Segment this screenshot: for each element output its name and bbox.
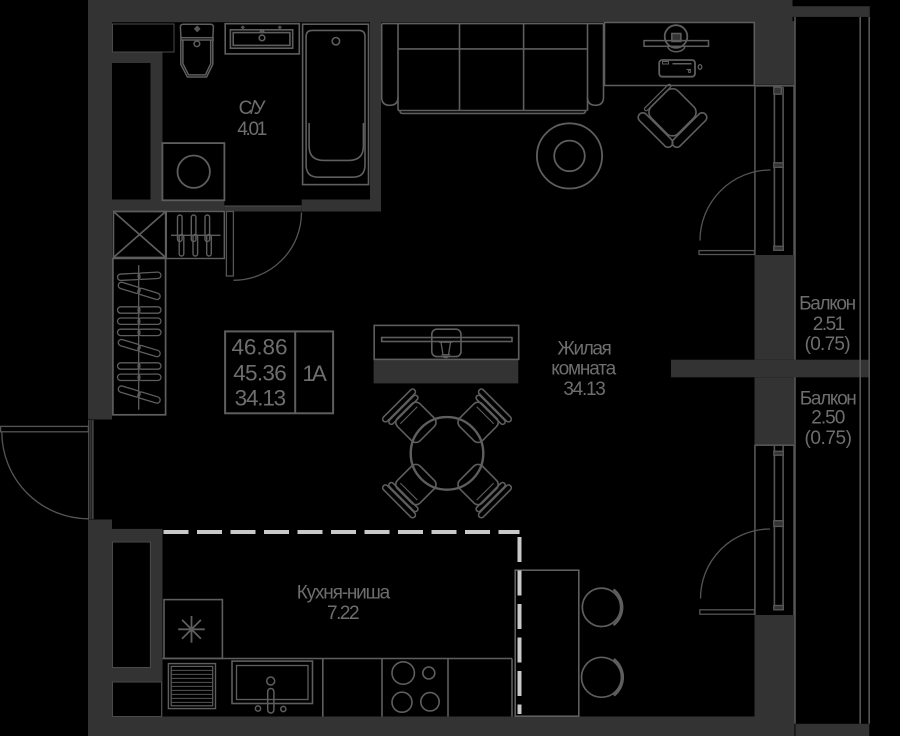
svg-text:(0.75): (0.75) [805,334,851,355]
svg-text:комната: комната [551,358,616,379]
svg-text:2.50: 2.50 [811,408,845,429]
svg-text:34.13: 34.13 [563,379,606,400]
svg-text:45.36: 45.36 [233,360,287,385]
svg-text:Балкон: Балкон [799,293,856,314]
svg-text:С/У: С/У [239,98,267,119]
svg-text:2.51: 2.51 [813,314,846,335]
svg-text:1А: 1А [302,361,327,386]
svg-text:Жилая: Жилая [557,338,612,359]
svg-text:Кухня-ниша: Кухня-ниша [297,582,391,603]
svg-text:7.22: 7.22 [327,603,360,624]
svg-text:Балкон: Балкон [800,389,857,410]
svg-text:(0.75): (0.75) [804,428,852,449]
svg-text:34.13: 34.13 [235,385,287,410]
svg-text:4.01: 4.01 [237,119,267,140]
svg-text:46.86: 46.86 [232,334,288,359]
